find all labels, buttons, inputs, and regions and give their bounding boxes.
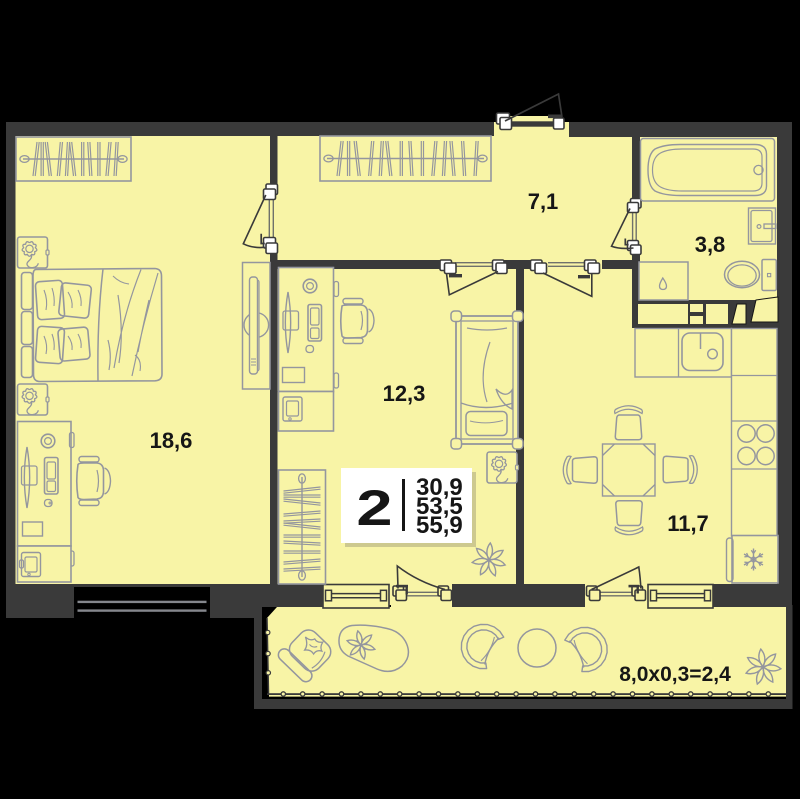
svg-text:7,1: 7,1 — [528, 189, 559, 214]
svg-text:2: 2 — [356, 481, 392, 536]
svg-text:55,9: 55,9 — [416, 512, 463, 539]
svg-text:12,3: 12,3 — [383, 381, 426, 406]
svg-text:8,0x0,3=2,4: 8,0x0,3=2,4 — [619, 663, 731, 686]
svg-text:3,8: 3,8 — [695, 232, 726, 257]
svg-text:18,6: 18,6 — [150, 428, 193, 453]
svg-text:11,7: 11,7 — [667, 511, 709, 536]
